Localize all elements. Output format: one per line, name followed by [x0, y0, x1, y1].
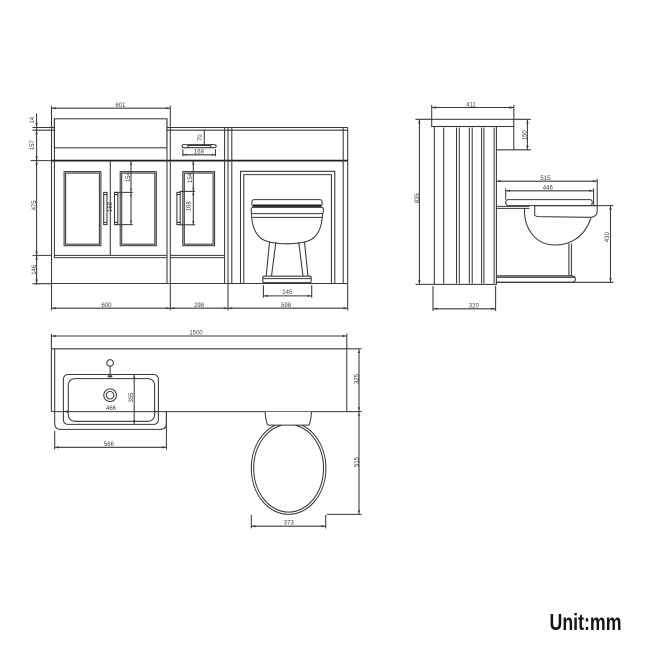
svg-text:154: 154 — [126, 172, 132, 183]
svg-text:475: 475 — [32, 200, 38, 211]
svg-text:466: 466 — [106, 406, 117, 412]
svg-text:245: 245 — [282, 290, 293, 296]
svg-text:154: 154 — [188, 172, 194, 183]
svg-text:Unit:mm: Unit:mm — [550, 609, 622, 635]
svg-text:598: 598 — [281, 303, 292, 309]
svg-text:355: 355 — [129, 392, 135, 403]
svg-text:446: 446 — [543, 186, 554, 192]
svg-text:150: 150 — [522, 130, 528, 141]
svg-text:566: 566 — [104, 442, 115, 448]
svg-text:373: 373 — [284, 520, 295, 526]
svg-text:325: 325 — [354, 373, 360, 384]
svg-text:411: 411 — [466, 103, 476, 109]
svg-text:157: 157 — [30, 140, 36, 151]
svg-text:601: 601 — [115, 103, 126, 109]
svg-text:168: 168 — [108, 201, 114, 212]
svg-text:168: 168 — [194, 149, 205, 155]
svg-text:320: 320 — [469, 303, 480, 309]
svg-text:600: 600 — [101, 303, 112, 309]
svg-text:14: 14 — [30, 116, 36, 123]
svg-text:515: 515 — [354, 456, 360, 467]
svg-text:515: 515 — [540, 176, 551, 182]
svg-text:168: 168 — [187, 201, 193, 212]
svg-text:146: 146 — [32, 264, 38, 275]
svg-text:835: 835 — [415, 193, 421, 204]
svg-text:1500: 1500 — [189, 331, 203, 337]
svg-text:70: 70 — [198, 134, 204, 141]
svg-text:298: 298 — [194, 303, 205, 309]
svg-text:430: 430 — [605, 232, 611, 243]
